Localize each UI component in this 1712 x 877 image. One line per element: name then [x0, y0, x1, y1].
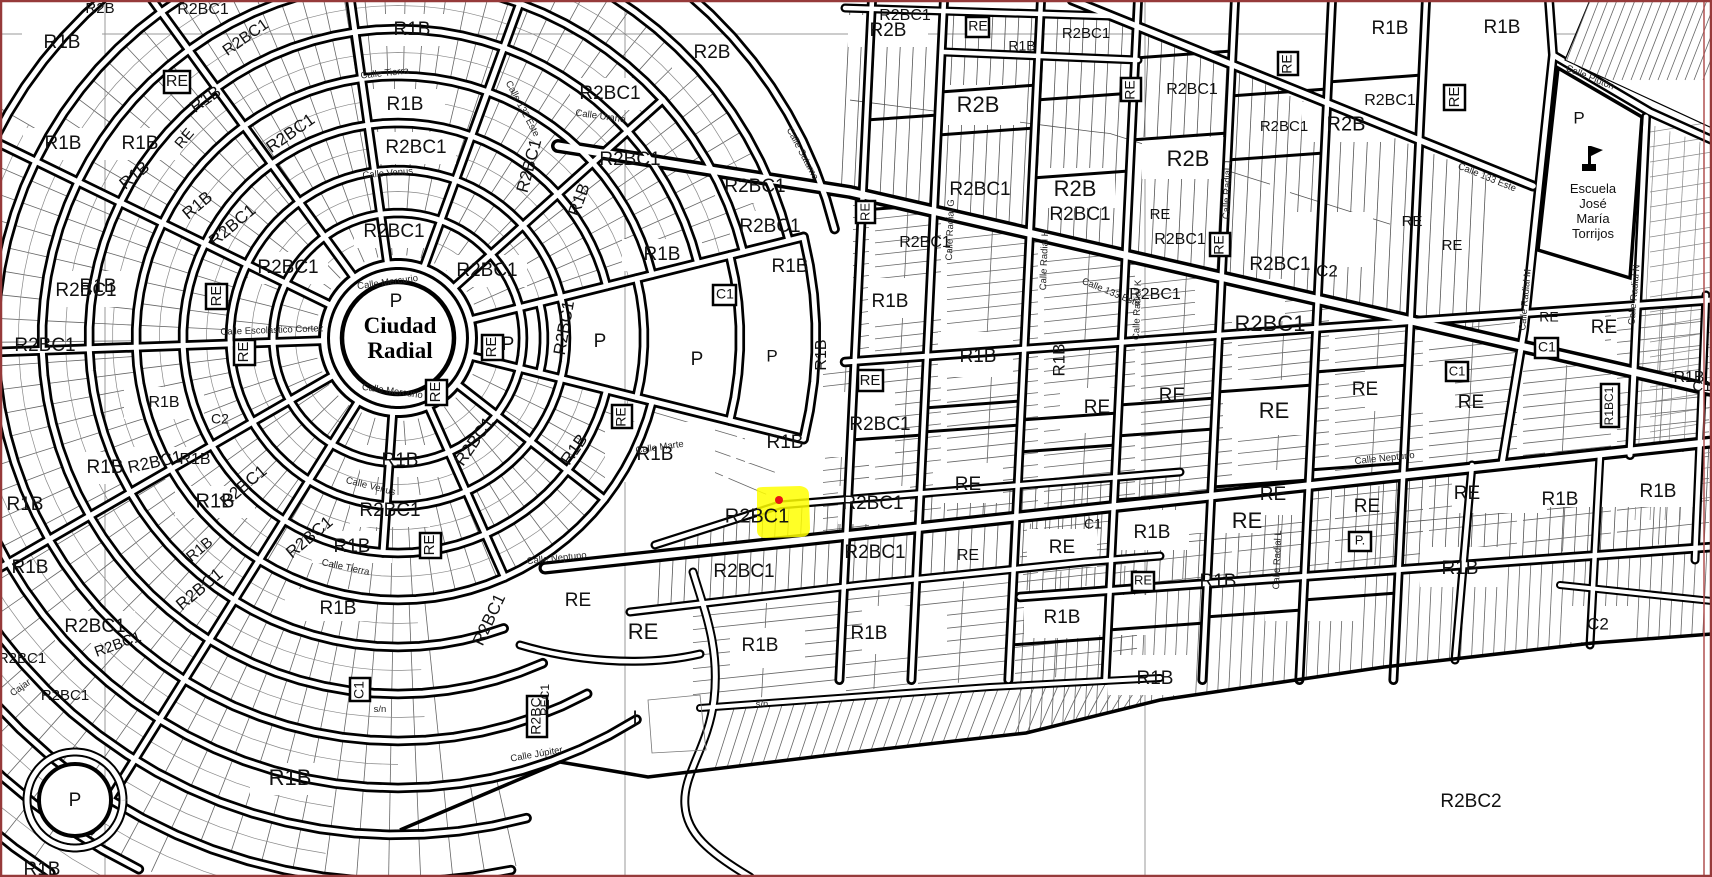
svg-text:P: P	[766, 346, 777, 365]
svg-text:R2BC1: R2BC1	[64, 616, 125, 637]
svg-text:RE: RE	[628, 619, 659, 644]
svg-text:R1B: R1B	[382, 450, 419, 471]
svg-text:R2B: R2B	[1327, 113, 1366, 135]
svg-text:R2BC1: R2BC1	[844, 542, 905, 563]
svg-text:R1B: R1B	[1044, 607, 1081, 628]
svg-text:R1BC1: R1BC1	[1602, 386, 1616, 425]
svg-text:RE: RE	[613, 407, 629, 426]
svg-text:R1B: R1B	[45, 133, 82, 154]
svg-text:R1B: R1B	[1134, 522, 1171, 543]
svg-text:R2BC1: R2BC1	[1154, 231, 1206, 248]
svg-text:Calle Radial H: Calle Radial H	[1038, 229, 1051, 290]
svg-text:C1: C1	[1449, 363, 1466, 378]
svg-text:RE: RE	[427, 382, 444, 403]
svg-text:P: P	[1573, 108, 1584, 127]
svg-text:R1B: R1B	[179, 451, 210, 468]
svg-text:R2BC1: R2BC1	[842, 493, 903, 514]
svg-text:RE: RE	[1458, 392, 1484, 413]
svg-text:R2BC1: R2BC1	[713, 561, 774, 582]
svg-text:RE: RE	[483, 337, 500, 358]
svg-text:R2BC1: R2BC1	[1049, 204, 1110, 225]
svg-text:RE: RE	[1402, 213, 1423, 230]
svg-text:RE: RE	[1122, 80, 1138, 99]
svg-text:RE: RE	[860, 372, 881, 389]
svg-text:R2B: R2B	[694, 42, 731, 63]
svg-text:R2BC1: R2BC1	[949, 179, 1010, 200]
svg-text:R1B: R1B	[1640, 481, 1677, 502]
svg-text:R2BC1: R2BC1	[177, 1, 229, 18]
svg-text:RE: RE	[955, 474, 981, 495]
svg-text:C1: C1	[1692, 378, 1711, 395]
svg-text:R1B: R1B	[44, 32, 81, 53]
svg-text:C2: C2	[1316, 261, 1338, 280]
svg-text:RE: RE	[1150, 206, 1171, 223]
svg-text:RE: RE	[1211, 235, 1227, 254]
svg-text:R2BC1: R2BC1	[1235, 311, 1306, 336]
svg-text:R2B: R2B	[1054, 176, 1097, 201]
svg-text:R2BC1: R2BC1	[724, 176, 785, 197]
svg-text:s/n: s/n	[374, 704, 387, 715]
svg-text:R2BC1: R2BC1	[257, 257, 318, 278]
svg-text:RE: RE	[1539, 309, 1558, 325]
svg-text:R2BC1: R2BC1	[359, 500, 420, 521]
svg-text:R2BC1: R2BC1	[849, 414, 910, 435]
svg-text:C1: C1	[351, 681, 367, 699]
svg-text:RE: RE	[1442, 237, 1463, 254]
svg-text:s/n: s/n	[756, 699, 769, 710]
svg-text:R1B: R1B	[1137, 668, 1174, 689]
svg-text:RE: RE	[1259, 398, 1290, 423]
svg-text:R1B: R1B	[1484, 17, 1521, 38]
svg-text:C1: C1	[716, 286, 734, 302]
svg-text:P: P	[691, 349, 704, 370]
svg-text:RE: RE	[421, 535, 438, 556]
svg-text:R1B: R1B	[196, 490, 235, 512]
svg-text:R2BC1: R2BC1	[363, 221, 424, 242]
svg-text:R2BC1: R2BC1	[14, 335, 75, 356]
svg-text:R2BC1: R2BC1	[1260, 118, 1308, 135]
svg-text:C1: C1	[1538, 339, 1556, 355]
svg-text:R2BC1: R2BC1	[0, 650, 46, 667]
svg-text:R1B: R1B	[7, 494, 44, 515]
svg-text:RE: RE	[957, 547, 979, 564]
svg-text:RE: RE	[968, 18, 987, 34]
svg-text:RE: RE	[1159, 385, 1185, 406]
svg-text:Torrijos: Torrijos	[1572, 226, 1614, 241]
svg-text:R1B: R1B	[12, 557, 49, 578]
svg-text:R1B: R1B	[872, 291, 909, 312]
svg-text:R1B: R1B	[1049, 343, 1068, 376]
svg-text:R1B: R1B	[1200, 571, 1237, 592]
svg-text:I: I	[632, 707, 638, 729]
svg-text:Calle Radial L: Calle Radial L	[1271, 530, 1284, 590]
svg-text:R1B: R1B	[87, 457, 124, 478]
svg-text:R2BC1: R2BC1	[879, 7, 931, 24]
svg-text:R2BC2: R2BC2	[1440, 791, 1501, 812]
svg-text:RE: RE	[1454, 483, 1480, 504]
svg-text:R2BC1: R2BC1	[1249, 254, 1310, 275]
svg-text:RE: RE	[1352, 379, 1378, 400]
svg-text:RE: RE	[1134, 572, 1152, 587]
svg-text:R1B: R1B	[387, 94, 424, 115]
svg-text:R1B: R1B	[269, 765, 312, 790]
svg-text:R1B: R1B	[1372, 18, 1409, 39]
svg-text:R2BC1: R2BC1	[41, 687, 89, 704]
svg-text:R2BC1: R2BC1	[385, 137, 446, 158]
svg-text:R1B: R1B	[767, 432, 804, 453]
svg-text:Calle Radial K: Calle Radial K	[1131, 279, 1144, 340]
svg-text:Calle Radial J: Calle Radial J	[1221, 160, 1234, 219]
svg-text:R1B: R1B	[851, 623, 888, 644]
svg-text:R1B: R1B	[1542, 489, 1579, 510]
svg-text:RE: RE	[565, 590, 591, 611]
svg-text:R1B: R1B	[1442, 558, 1479, 579]
svg-text:RE: RE	[235, 342, 252, 363]
svg-text:C1: C1	[1084, 516, 1102, 532]
svg-text:R2B: R2B	[1167, 146, 1210, 171]
svg-text:R2BC1: R2BC1	[456, 260, 517, 281]
svg-text:R2B: R2B	[85, 0, 114, 17]
svg-text:R2BC1: R2BC1	[1364, 92, 1416, 109]
svg-text:R2BC1: R2BC1	[899, 234, 951, 251]
svg-text:P: P	[594, 331, 607, 352]
svg-text:Radial: Radial	[367, 338, 432, 363]
svg-text:R1B: R1B	[1008, 38, 1035, 54]
svg-text:R1B: R1B	[960, 346, 997, 367]
svg-text:RE: RE	[208, 286, 225, 307]
svg-text:RE: RE	[1084, 397, 1110, 418]
svg-text:R2BC1: R2BC1	[579, 83, 640, 104]
svg-text:RE: RE	[857, 203, 872, 221]
svg-text:R2BC1: R2BC1	[55, 280, 116, 301]
svg-text:R1B: R1B	[644, 244, 681, 265]
svg-text:RE: RE	[1049, 537, 1075, 558]
svg-text:R1B: R1B	[148, 394, 179, 411]
svg-text:RE: RE	[1354, 496, 1380, 517]
svg-text:R2BC1: R2BC1	[1166, 81, 1218, 98]
svg-text:R1B: R1B	[394, 19, 431, 40]
svg-text:R1B: R1B	[742, 635, 779, 656]
svg-text:María: María	[1576, 211, 1610, 226]
svg-text:R2BC1: R2BC1	[599, 149, 660, 170]
svg-text:R1B: R1B	[24, 859, 61, 877]
svg-text:R2BC1: R2BC1	[1062, 25, 1110, 42]
svg-text:R1B: R1B	[320, 598, 357, 619]
svg-text:RE: RE	[1260, 484, 1286, 505]
svg-text:R2B: R2B	[957, 92, 1000, 117]
svg-text:Calle Radial G: Calle Radial G	[944, 199, 957, 261]
svg-text:José: José	[1579, 196, 1606, 211]
svg-text:C2: C2	[1587, 614, 1609, 633]
svg-text:RE: RE	[1446, 87, 1463, 108]
svg-text:RE: RE	[166, 73, 188, 90]
svg-text:C2: C2	[211, 411, 229, 427]
svg-text:P: P	[390, 291, 403, 312]
svg-text:R1B: R1B	[334, 536, 371, 557]
svg-text:RE: RE	[1232, 508, 1263, 533]
svg-text:RE: RE	[1279, 54, 1295, 73]
svg-text:RE: RE	[1591, 317, 1617, 338]
svg-text:P: P	[69, 790, 82, 811]
svg-text:R1B: R1B	[122, 133, 159, 154]
svg-text:P.: P.	[1355, 532, 1366, 547]
svg-text:R1B: R1B	[772, 256, 809, 277]
svg-text:Ciudad: Ciudad	[364, 313, 437, 338]
svg-text:R1B: R1B	[813, 339, 830, 370]
svg-text:REC1: REC1	[538, 684, 552, 716]
svg-text:R2BC1: R2BC1	[739, 216, 800, 237]
svg-text:R2BC1: R2BC1	[725, 505, 789, 527]
svg-text:Escuela: Escuela	[1570, 181, 1617, 196]
svg-text:P: P	[502, 334, 515, 355]
